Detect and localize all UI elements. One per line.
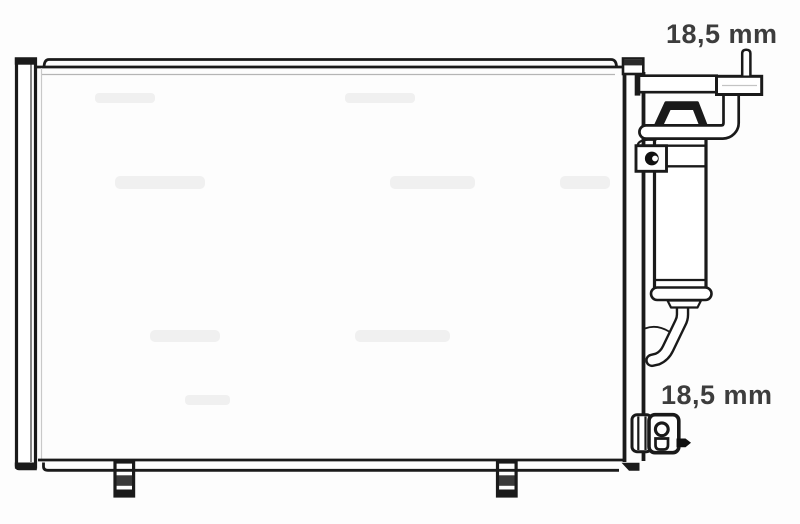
svg-text:18,5 mm: 18,5 mm [666,19,778,49]
svg-text:18,5 mm: 18,5 mm [661,380,773,410]
